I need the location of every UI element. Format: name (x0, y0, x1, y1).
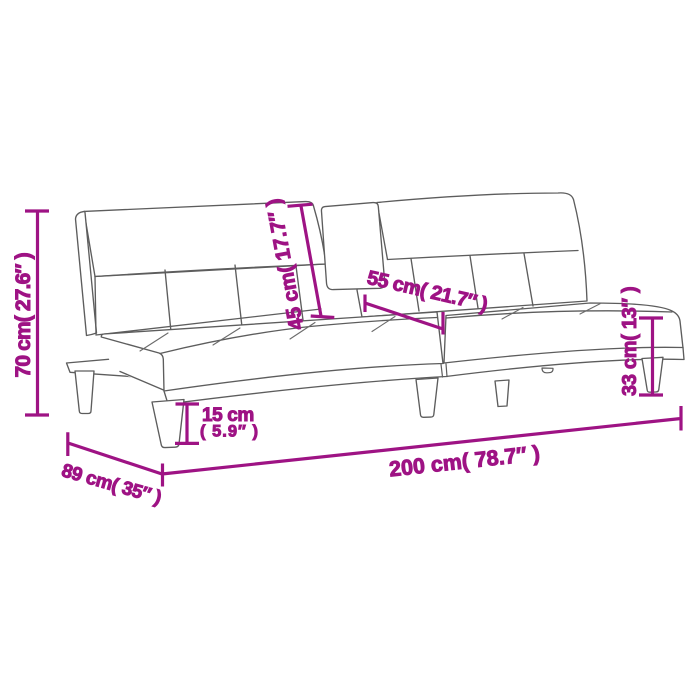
svg-text:( 5.9″ ): ( 5.9″ ) (200, 423, 259, 441)
svg-text:33 cm( 13″ ): 33 cm( 13″ ) (619, 287, 641, 396)
svg-text:70 cm( 27.6″ ): 70 cm( 27.6″ ) (12, 253, 35, 377)
